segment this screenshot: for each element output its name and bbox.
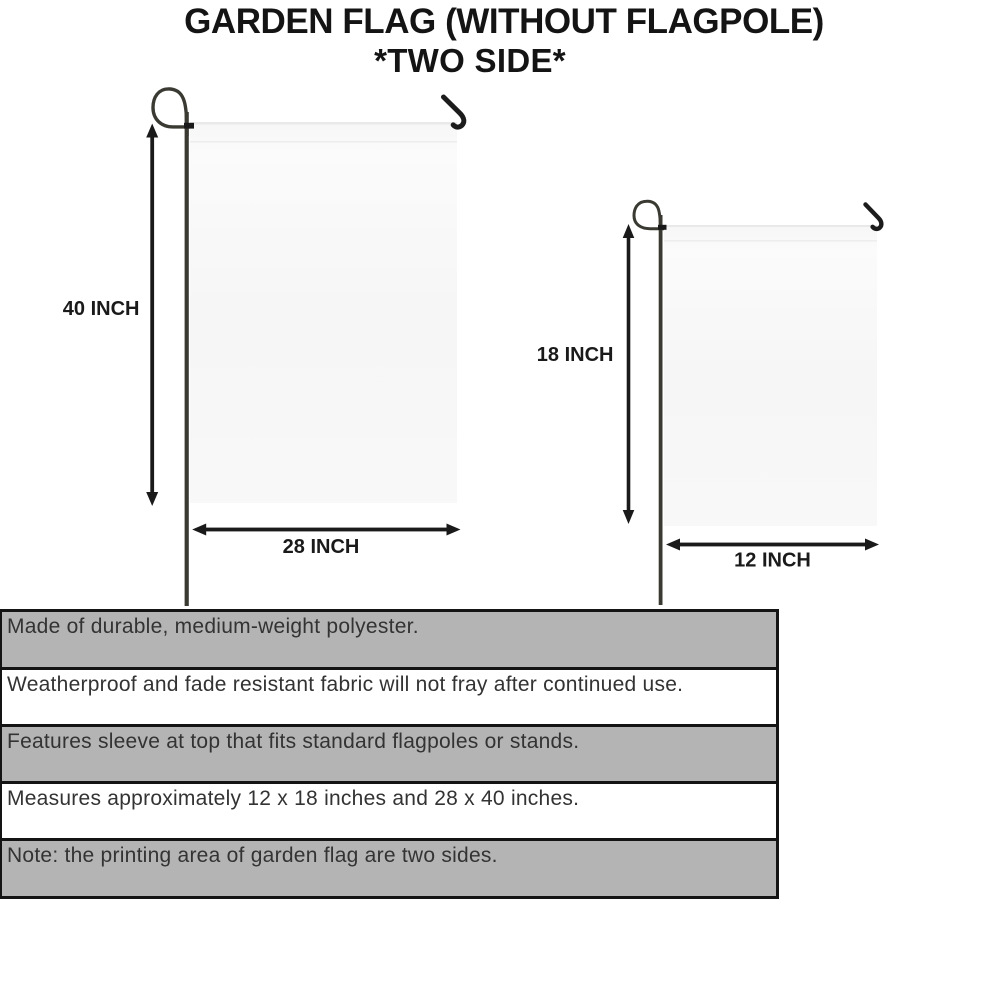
svg-text:40 INCH: 40 INCH bbox=[63, 298, 140, 320]
svg-text:12 INCH: 12 INCH bbox=[734, 550, 811, 572]
svg-text:18 INCH: 18 INCH bbox=[537, 344, 614, 366]
svg-text:28 INCH: 28 INCH bbox=[283, 536, 360, 558]
